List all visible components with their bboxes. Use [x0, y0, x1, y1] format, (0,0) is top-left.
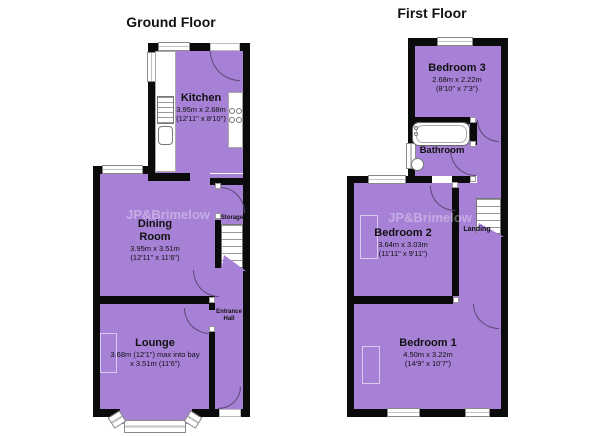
front-door-gap — [219, 409, 241, 417]
door-jamb-marker — [452, 182, 458, 188]
floorplan-canvas: Ground Floor Kitchen — [0, 0, 600, 436]
kitchen-door-gap — [210, 43, 240, 51]
door-jamb-marker — [209, 297, 215, 303]
dining-dims-m: 3.95m x 3.51m — [130, 244, 180, 253]
kitchen-name: Kitchen — [176, 92, 226, 105]
bedroom1-label: Bedroom 1 4.50m x 3.22m (14'9" x 10'7") — [399, 337, 456, 368]
wall-kitchen-dining — [148, 173, 190, 181]
door-jamb-marker — [215, 183, 221, 189]
kitchen-sink-bowl — [158, 126, 173, 145]
entrance-hall-label: Entrance Hall — [216, 309, 242, 323]
bedroom1-dims-ft: (14'9" x 10'7") — [399, 359, 456, 368]
kitchen-dining-opening — [190, 172, 210, 186]
bathroom-label: Bathroom — [420, 145, 465, 156]
bedroom1-window-left — [387, 408, 420, 417]
hob-burner — [229, 108, 235, 114]
kitchen-dims-ft: (12'11" x 8'10") — [176, 114, 226, 123]
dining-label: Dining Room 3.95m x 3.51m (12'11" x 11'6… — [130, 218, 180, 262]
kitchen-dims-m: 3.95m x 2.68m — [176, 105, 226, 114]
first-floor-title: First Floor — [397, 5, 466, 21]
entrance-hall-name-1: Entrance — [216, 309, 242, 316]
entrance-hall-name-2: Hall — [216, 316, 242, 323]
bedroom2-name: Bedroom 2 — [374, 227, 431, 240]
wall-mid-b — [406, 176, 432, 183]
bedroom2-label: Bedroom 2 3.64m x 3.03m (11'11" x 9'11") — [374, 227, 431, 258]
bay-window-front — [124, 420, 186, 433]
wall-bed2-bed1 — [347, 296, 453, 304]
lounge-dims-2: x 3.51m (11'6") — [110, 359, 199, 368]
door-jamb-marker — [470, 176, 476, 182]
bathtub-tap — [414, 126, 418, 130]
bedroom2-dims-m: 3.64m x 3.03m — [374, 240, 431, 249]
landing-label: Landing — [463, 226, 490, 234]
door-jamb-marker — [209, 326, 215, 332]
wall-ground-right — [243, 43, 250, 417]
ground-floor-title: Ground Floor — [126, 14, 215, 30]
kitchen-top-window — [158, 42, 190, 51]
bedroom3-label: Bedroom 3 2.68m x 2.22m (8'10" x 7'3") — [428, 62, 485, 93]
bathroom-sink — [411, 158, 424, 171]
door-jamb-marker — [470, 141, 476, 147]
ground-stairs-cut — [221, 252, 246, 271]
door-jamb-marker — [453, 297, 459, 303]
dining-dims-ft: (12'11" x 11'6") — [130, 253, 180, 262]
bedroom3-dims-ft: (8'10" x 7'3") — [428, 84, 485, 93]
dining-name-2: Room — [130, 231, 180, 244]
hob-burner — [236, 117, 242, 123]
bathtub-tap — [414, 132, 418, 136]
bedroom1-furniture-outline — [362, 346, 380, 384]
hob-burner — [236, 108, 242, 114]
wall-hall-west — [209, 331, 215, 417]
door-jamb-marker — [470, 117, 476, 123]
lounge-dims-1: 3.68m (12'1") max into bay — [110, 350, 199, 359]
storage-label: Storage — [221, 215, 243, 222]
bedroom3-window — [437, 37, 473, 46]
bathtub-inner — [416, 125, 467, 143]
wall-dining-lounge — [93, 296, 215, 304]
kitchen-sink-drainer — [157, 96, 174, 124]
bedroom3-dims-m: 2.68m x 2.22m — [428, 75, 485, 84]
bedroom3-name: Bedroom 3 — [428, 62, 485, 75]
lounge-label: Lounge 3.68m (12'1") max into bay x 3.51… — [110, 337, 199, 368]
dining-name-1: Dining — [130, 218, 180, 231]
bedroom1-name: Bedroom 1 — [399, 337, 456, 350]
bedroom1-dims-m: 4.50m x 3.22m — [399, 350, 456, 359]
landing-corridor-opening — [477, 174, 501, 186]
kitchen-label: Kitchen 3.95m x 2.68m (12'11" x 8'10") — [176, 92, 226, 123]
bedroom2-window — [368, 175, 406, 184]
hob-burner — [229, 117, 235, 123]
dining-window — [102, 165, 143, 174]
lounge-name: Lounge — [110, 337, 199, 350]
wall-ground-left — [93, 166, 100, 417]
bedroom2-dims-ft: (11'11" x 9'11") — [374, 249, 431, 258]
bedroom1-window-right — [465, 408, 490, 417]
